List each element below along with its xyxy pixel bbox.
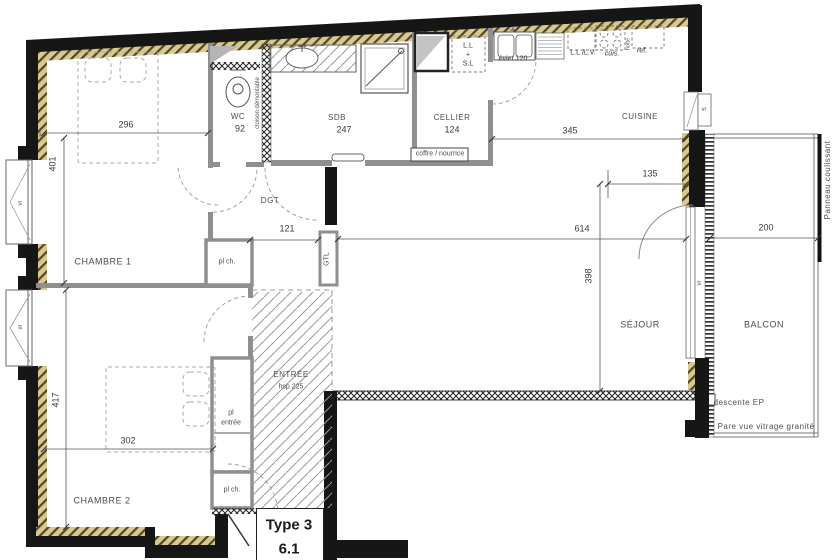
- dim-balcon: 200: [758, 224, 773, 233]
- vr-label-sejour: vr: [697, 281, 703, 286]
- washbasin-icon: [270, 44, 356, 72]
- floorplan-drawing: [0, 0, 840, 560]
- dim-wc: 92: [235, 125, 245, 134]
- room-label-cuisine: CUISINE: [622, 113, 658, 121]
- sl-label: S.L: [463, 61, 474, 68]
- room-label-sdb: SDB: [328, 114, 346, 122]
- cuisiniere-label: cuis.: [605, 51, 619, 58]
- type-label: Type 3: [266, 518, 312, 533]
- fridge-box-icon: [632, 26, 664, 48]
- gtl-label: GTL: [324, 252, 331, 266]
- room-label-chambre1: CHAMBRE 1: [74, 258, 131, 267]
- closet-label-chambre1: pl ch.: [219, 259, 236, 266]
- dim-sejour-height: 398: [585, 268, 594, 283]
- room-label-sejour: SÉJOUR: [620, 321, 660, 330]
- balcony: [705, 134, 820, 437]
- dim-chambre2-height: 417: [52, 392, 61, 407]
- cellier-duct-icon: [415, 33, 448, 71]
- evier-label: évier 120: [499, 56, 528, 63]
- vr-label-chambre1: vr: [18, 201, 24, 206]
- room-label-wc: WC: [231, 113, 245, 121]
- room-label-chambre2: CHAMBRE 2: [73, 497, 130, 506]
- panneau-coulissant-label: Panneau coulissant: [824, 141, 832, 220]
- dim-cuisine: 345: [562, 127, 577, 136]
- closet-label-entree-1: pl: [228, 410, 233, 417]
- ll-label: L.L: [463, 43, 473, 50]
- closet-label-entree-2: entrée: [221, 420, 241, 427]
- dim-cellier: 124: [444, 126, 459, 135]
- plus-label: +: [466, 52, 470, 59]
- dim-dgt: 121: [279, 225, 294, 234]
- toilet-icon: [226, 70, 250, 107]
- coffre-nourrice-label: coffre / nourrice: [416, 151, 465, 158]
- entree-ceiling-height: hsp 225: [279, 384, 304, 391]
- room-label-balcon: BALCON: [744, 321, 784, 330]
- hotte-label: hotte: [626, 38, 632, 50]
- lot-number: 6.1: [279, 542, 300, 557]
- dim-chambre2-width: 302: [120, 437, 135, 446]
- descente-ep-label: descente EP: [714, 399, 765, 407]
- door-sill: [332, 154, 364, 161]
- vr-label-chambre2: vr: [18, 325, 24, 330]
- dim-cuisine-2: 135: [642, 170, 657, 179]
- balcony-door-arc: [639, 205, 693, 259]
- dim-sdb: 247: [336, 126, 351, 135]
- dim-sejour-width: 614: [574, 225, 589, 234]
- room-label-dgt: DGT: [261, 197, 279, 205]
- room-label-cellier: CELLIER: [434, 114, 471, 122]
- closet-label-chambre2: pl ch.: [224, 487, 241, 494]
- ref-label: ref.: [637, 48, 647, 55]
- entry-hatch: [252, 290, 332, 508]
- floorplan: CHAMBRE 1 296 401 CHAMBRE 2 302 417 WC 9…: [0, 0, 840, 560]
- dim-chambre1-width: 296: [118, 121, 133, 130]
- bed-chambre1-icon: [78, 52, 158, 163]
- cloison-demontable-label: cloison démontable: [255, 77, 261, 129]
- room-label-entree: ENTRÉE: [273, 371, 308, 379]
- pare-vue-label: Pare vue vitrage granité: [718, 423, 815, 431]
- sejour-spandrel-wall: [333, 391, 695, 400]
- vr-label-cuisine: vr: [702, 107, 707, 113]
- ll-lv-label: L.L./L.V.: [570, 50, 595, 57]
- dim-chambre1-height: 401: [49, 156, 58, 171]
- shower-icon: [361, 44, 408, 93]
